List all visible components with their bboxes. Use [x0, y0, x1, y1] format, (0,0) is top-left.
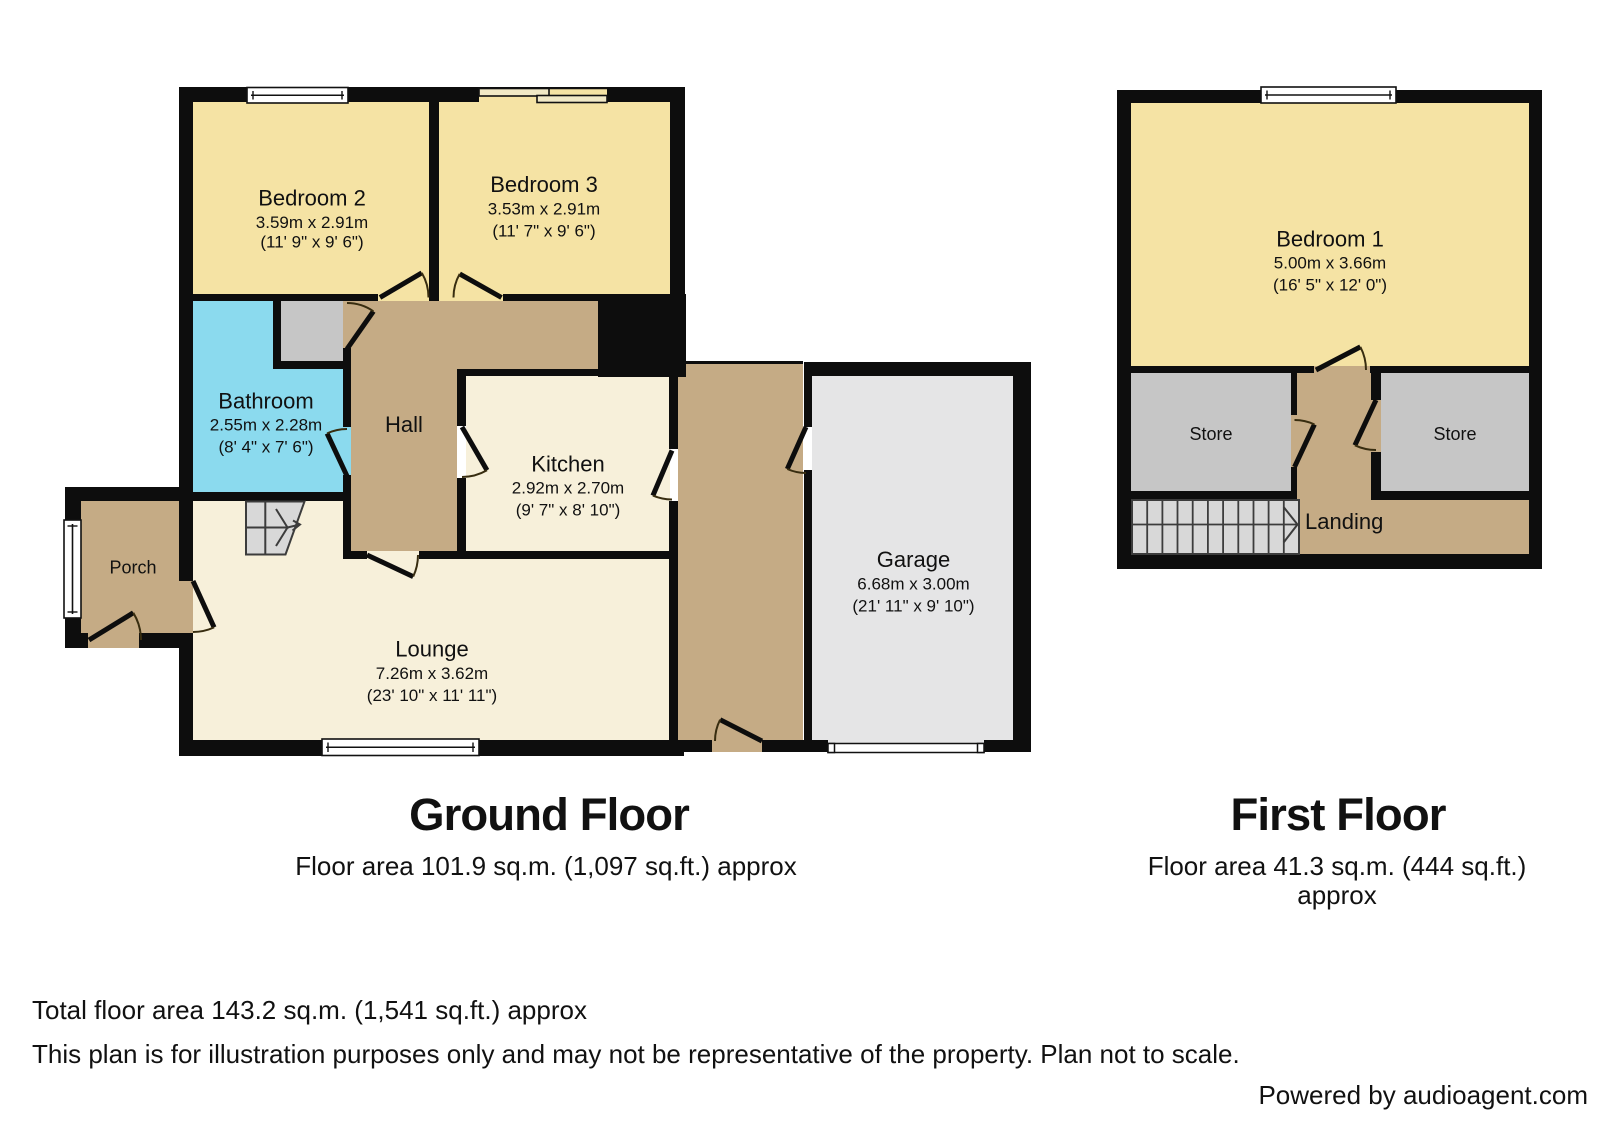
svg-text:Floor area 41.3 sq.m. (444 sq.: Floor area 41.3 sq.m. (444 sq.ft.) — [1148, 851, 1527, 881]
svg-text:(21' 11" x 9' 10"): (21' 11" x 9' 10") — [852, 597, 974, 616]
svg-text:3.53m x 2.91m: 3.53m x 2.91m — [488, 200, 600, 219]
svg-text:6.68m x 3.00m: 6.68m x 3.00m — [857, 575, 969, 594]
svg-text:(11' 9" x 9' 6"): (11' 9" x 9' 6") — [260, 233, 363, 252]
svg-text:(23' 10" x 11' 11"): (23' 10" x 11' 11") — [367, 686, 497, 705]
svg-text:Garage: Garage — [877, 547, 950, 572]
svg-text:Total floor area 143.2 sq.m. (: Total floor area 143.2 sq.m. (1,541 sq.f… — [32, 995, 587, 1025]
svg-text:Hall: Hall — [385, 412, 423, 437]
svg-text:(16' 5" x 12' 0"): (16' 5" x 12' 0") — [1273, 276, 1387, 295]
svg-text:Store: Store — [1189, 424, 1232, 444]
svg-text:Kitchen: Kitchen — [531, 452, 604, 477]
svg-text:2.92m x 2.70m: 2.92m x 2.70m — [512, 479, 624, 498]
svg-text:Floor area 101.9 sq.m. (1,097: Floor area 101.9 sq.m. (1,097 sq.ft.) ap… — [295, 851, 796, 881]
svg-text:5.00m x 3.66m: 5.00m x 3.66m — [1274, 254, 1386, 273]
svg-text:This plan is for illustration: This plan is for illustration purposes o… — [32, 1039, 1240, 1069]
svg-text:Bathroom: Bathroom — [218, 389, 313, 414]
svg-text:Porch: Porch — [109, 558, 156, 578]
svg-text:(9' 7" x 8' 10"): (9' 7" x 8' 10") — [516, 501, 621, 520]
svg-text:Lounge: Lounge — [395, 637, 468, 662]
svg-text:Bedroom 3: Bedroom 3 — [490, 172, 598, 197]
svg-text:2.55m x 2.28m: 2.55m x 2.28m — [210, 416, 322, 435]
svg-text:3.59m x 2.91m: 3.59m x 2.91m — [256, 213, 368, 232]
svg-text:Landing: Landing — [1305, 509, 1383, 534]
svg-text:7.26m x 3.62m: 7.26m x 3.62m — [376, 664, 488, 683]
svg-text:approx: approx — [1297, 880, 1377, 910]
svg-text:Bedroom 1: Bedroom 1 — [1276, 227, 1384, 252]
svg-text:First Floor: First Floor — [1230, 789, 1446, 840]
svg-text:Ground Floor: Ground Floor — [409, 789, 690, 840]
svg-text:Powered by audioagent.com: Powered by audioagent.com — [1258, 1080, 1588, 1110]
svg-text:(11' 7" x 9' 6"): (11' 7" x 9' 6") — [492, 222, 595, 241]
svg-text:(8' 4" x 7' 6"): (8' 4" x 7' 6") — [218, 438, 313, 457]
svg-text:Bedroom 2: Bedroom 2 — [258, 186, 366, 211]
svg-text:Store: Store — [1433, 424, 1476, 444]
